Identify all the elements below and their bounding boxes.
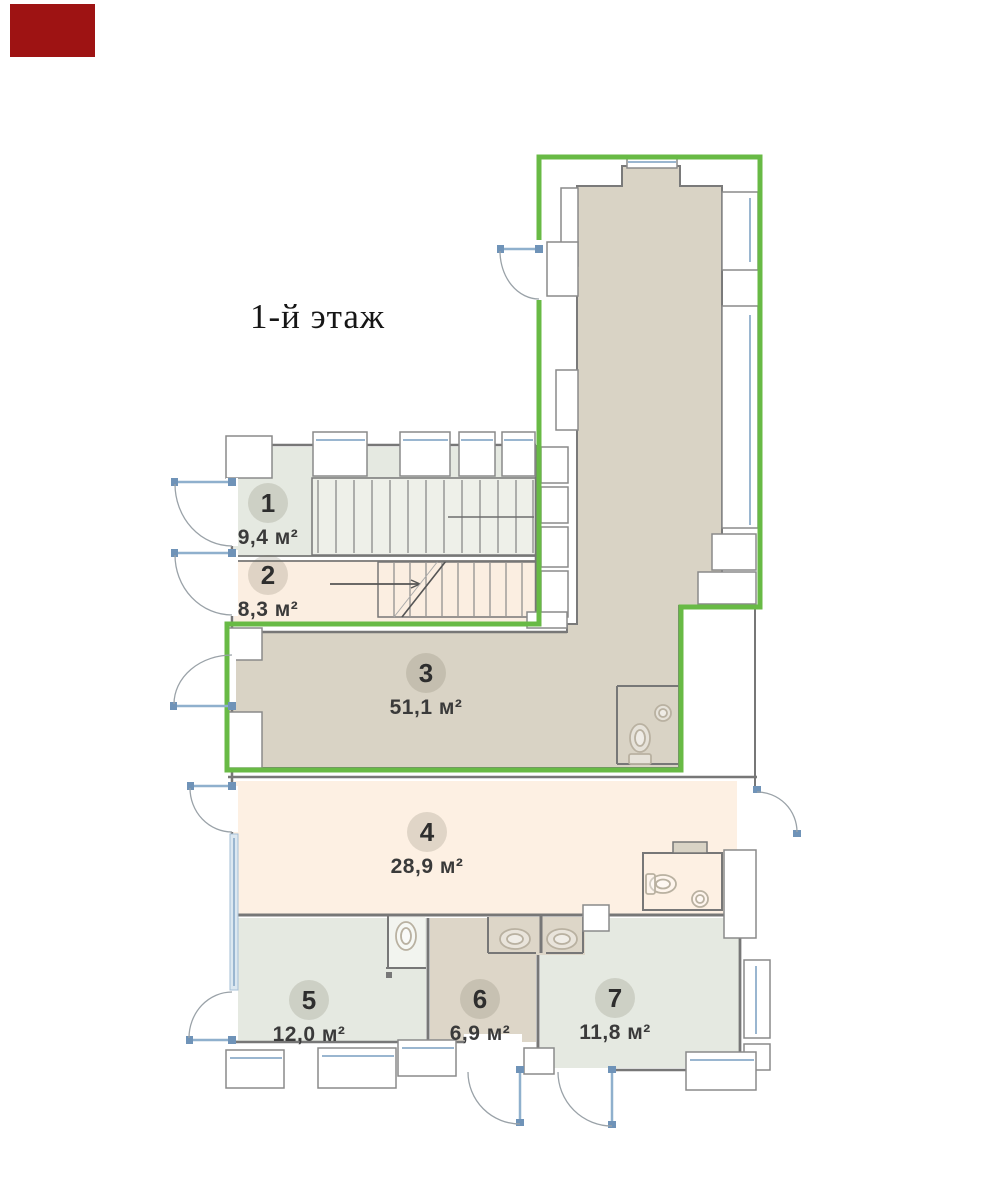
room-1-area: 9,4 м² <box>208 526 328 550</box>
sink-icon-wc3 <box>655 705 671 721</box>
sink-icon-wc4 <box>692 891 708 907</box>
room-2-area: 8,3 м² <box>208 598 328 622</box>
room-2-label: 2 8,3 м² <box>208 555 328 622</box>
toilet-icon-wc5 <box>396 922 416 950</box>
room-1-label: 1 9,4 м² <box>208 483 328 550</box>
room-1-number: 1 <box>248 483 288 523</box>
floor-plan-page: 1-й этаж <box>0 0 1000 1180</box>
room-7-area: 11,8 м² <box>555 1021 675 1045</box>
room-3-number: 3 <box>406 653 446 693</box>
room-6-label: 6 6,9 м² <box>420 979 540 1046</box>
toilet-icon-alcove-right <box>547 929 577 949</box>
room-3-area: 51,1 м² <box>366 696 486 720</box>
room-7-label: 7 11,8 м² <box>555 978 675 1045</box>
toilet-icon-wc3 <box>629 724 651 764</box>
room-4-area: 28,9 м² <box>367 855 487 879</box>
room-4-number: 4 <box>407 812 447 852</box>
toilet-icon-wc4 <box>646 874 676 894</box>
toilet-icon-alcove-left <box>500 929 530 949</box>
room-6-number: 6 <box>460 979 500 1019</box>
room-2-number: 2 <box>248 555 288 595</box>
room-5-area: 12,0 м² <box>249 1023 369 1047</box>
room-7-number: 7 <box>595 978 635 1018</box>
room-6-area: 6,9 м² <box>420 1022 540 1046</box>
room-3-label: 3 51,1 м² <box>366 653 486 720</box>
room-5-label: 5 12,0 м² <box>249 980 369 1047</box>
room-4-label: 4 28,9 м² <box>367 812 487 879</box>
room-5-number: 5 <box>289 980 329 1020</box>
